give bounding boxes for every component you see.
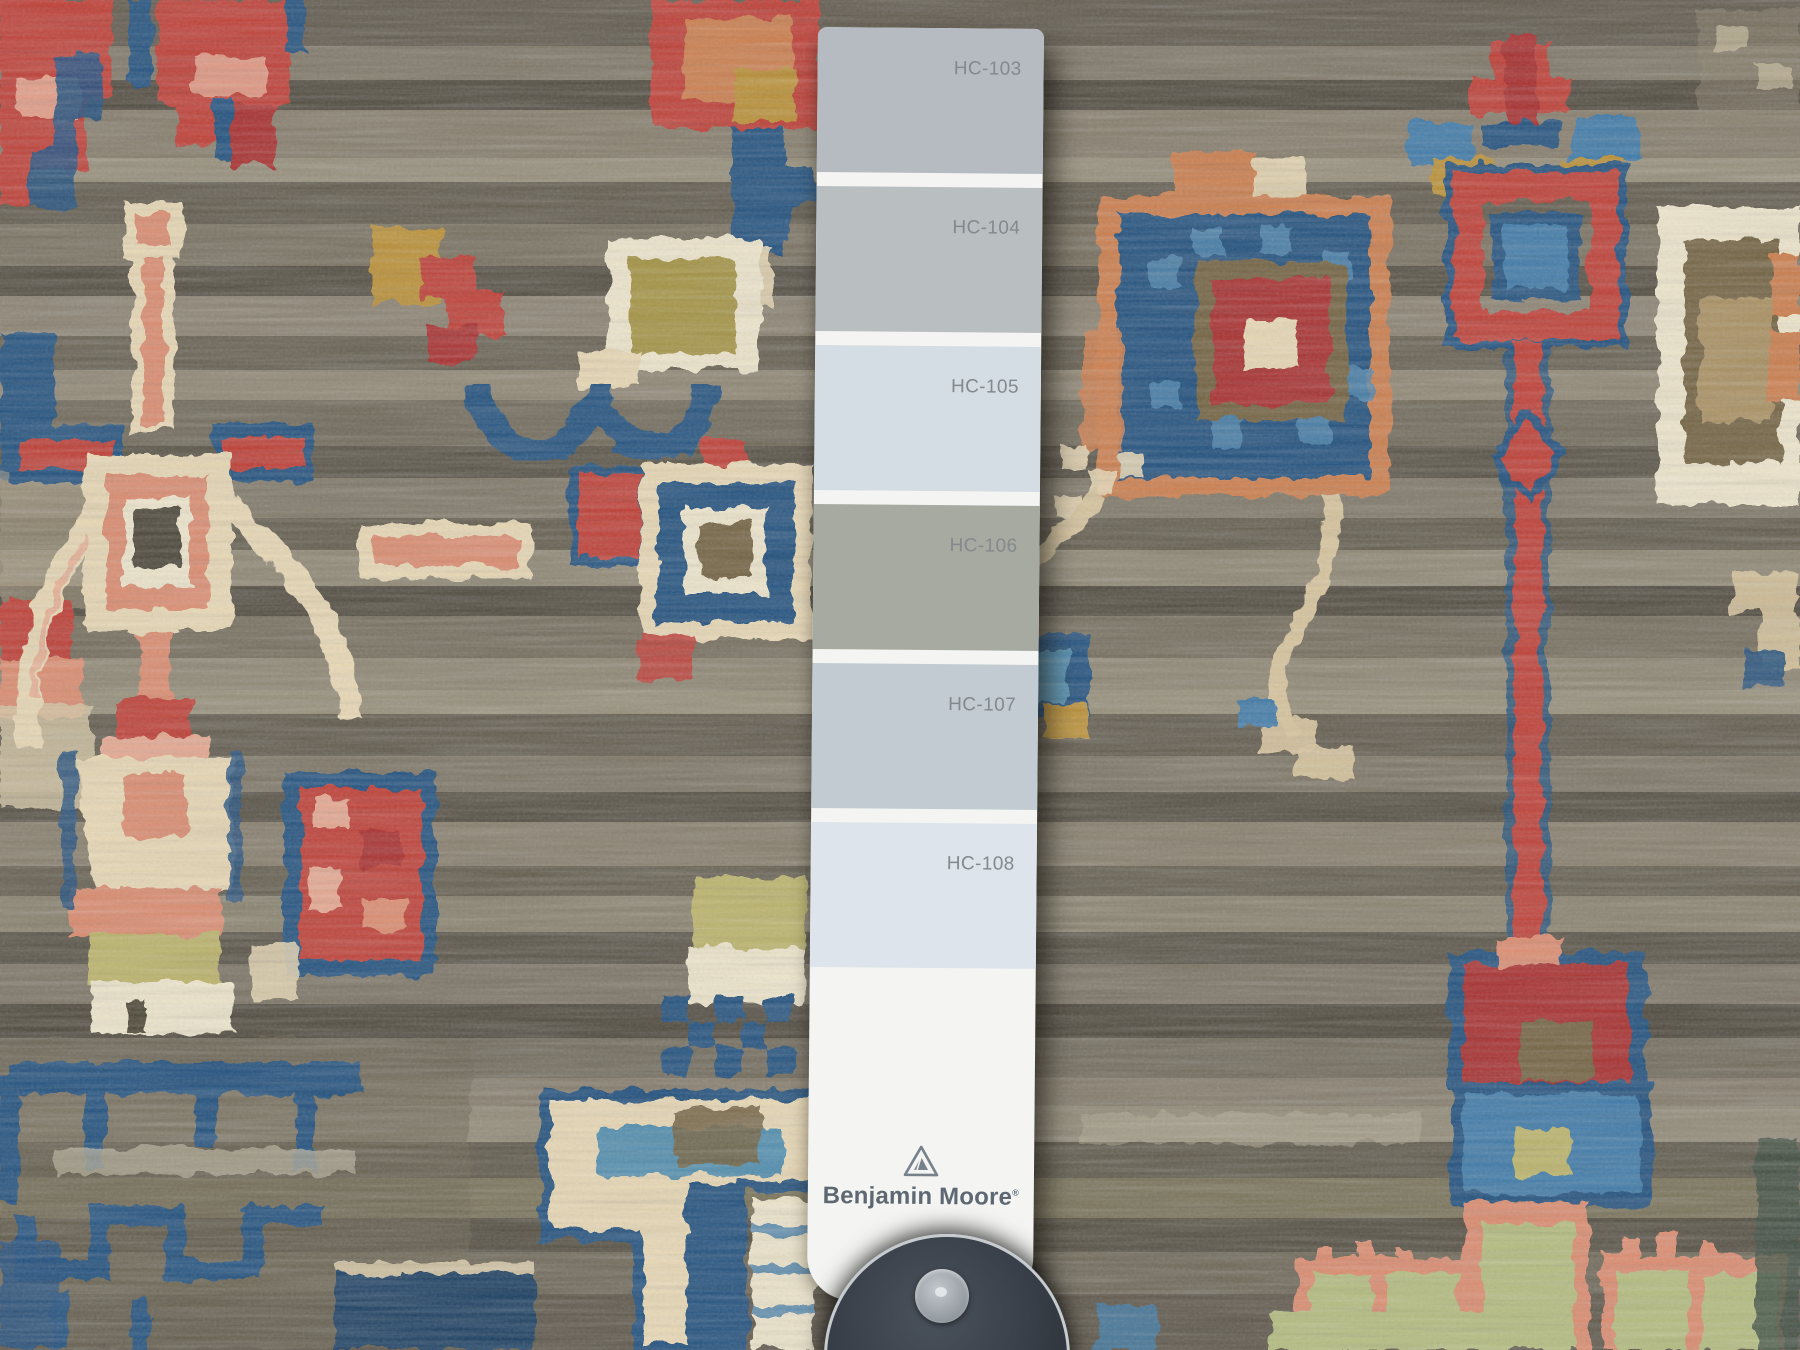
binding-post-grommet xyxy=(915,1269,969,1323)
swatch-hc-104: HC-104 xyxy=(815,186,1042,333)
paint-strip: HC-103 HC-104 HC-105 HC-106 HC-107 HC-10… xyxy=(807,27,1044,1302)
swatch-code: HC-108 xyxy=(947,853,1015,876)
swatch-hc-103: HC-103 xyxy=(817,27,1044,174)
swatch-hc-107: HC-107 xyxy=(811,663,1038,810)
brand-name: Benjamin Moore® xyxy=(808,1182,1034,1212)
trademark-symbol: ® xyxy=(1012,1188,1019,1198)
swatch-code: HC-107 xyxy=(948,694,1016,717)
swatch-hc-108: HC-108 xyxy=(810,822,1037,969)
swatch-code: HC-105 xyxy=(951,376,1019,399)
benjamin-moore-triangle-logo-icon xyxy=(902,1144,940,1178)
swatch-code: HC-106 xyxy=(950,535,1018,558)
swatch-code: HC-104 xyxy=(952,217,1020,240)
swatch-hc-106: HC-106 xyxy=(813,504,1040,651)
photo-of-rug-with-paint-strip: HC-103 HC-104 HC-105 HC-106 HC-107 HC-10… xyxy=(0,0,1800,1350)
swatch-code: HC-103 xyxy=(954,58,1022,81)
grommet-highlight xyxy=(935,1287,947,1297)
brand-block: Benjamin Moore® xyxy=(808,1143,1035,1212)
swatch-hc-105: HC-105 xyxy=(814,345,1041,492)
